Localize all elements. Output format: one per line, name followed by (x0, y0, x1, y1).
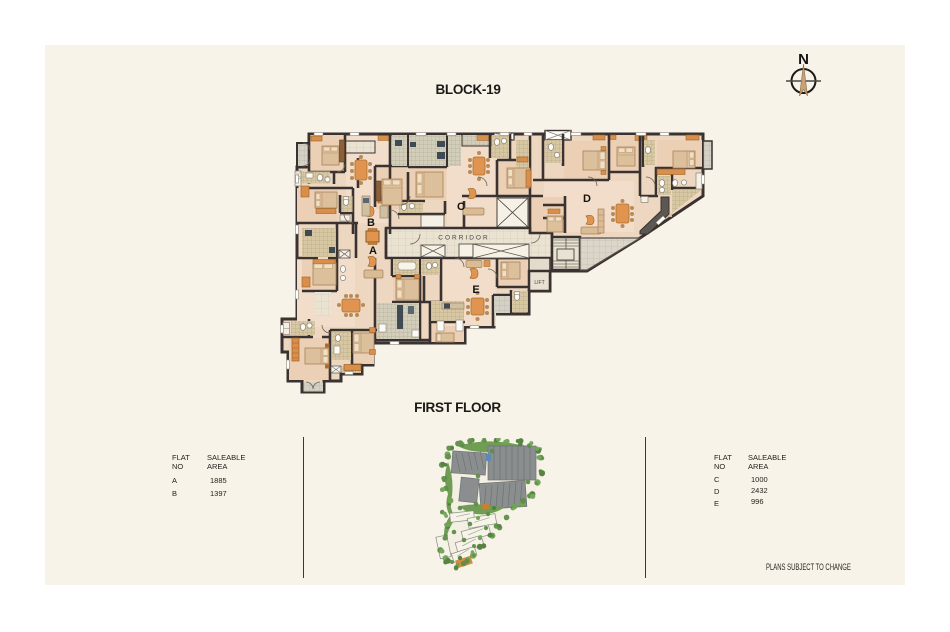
svg-text:C: C (457, 201, 465, 213)
svg-text:CORRIDOR: CORRIDOR (438, 235, 489, 242)
svg-text:D: D (583, 193, 591, 205)
svg-text:A: A (369, 245, 377, 257)
svg-text:B: B (367, 217, 375, 229)
svg-text:E: E (472, 284, 479, 296)
svg-text:LIFT: LIFT (534, 280, 544, 286)
